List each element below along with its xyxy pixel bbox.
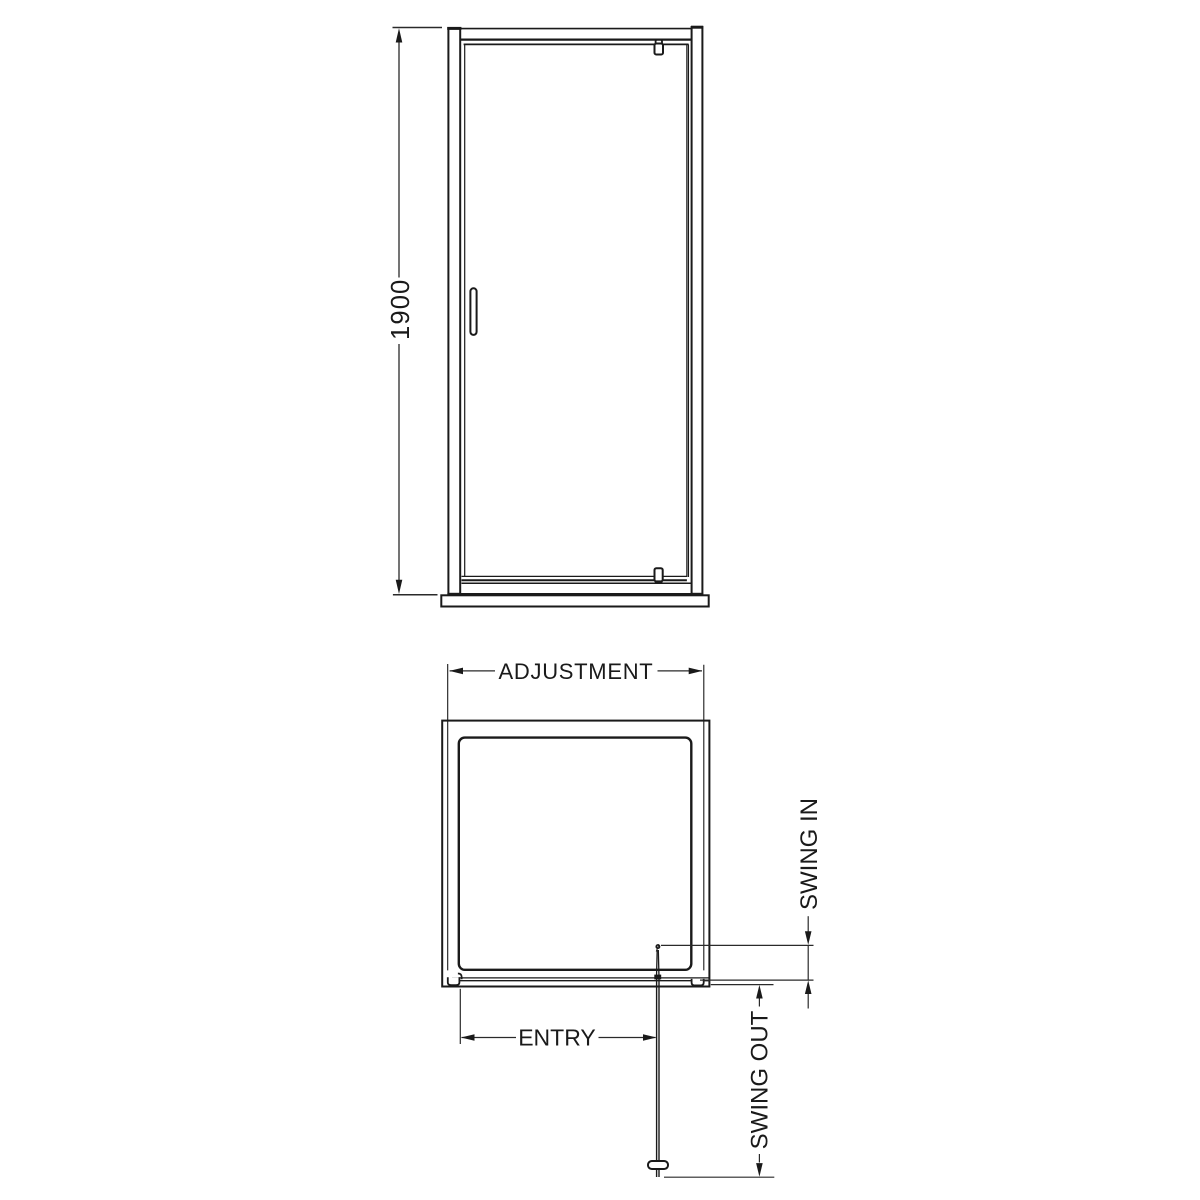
svg-text:SWING IN: SWING IN bbox=[796, 798, 823, 910]
svg-text:1900: 1900 bbox=[387, 279, 415, 340]
svg-text:ENTRY: ENTRY bbox=[518, 1024, 596, 1050]
svg-text:ADJUSTMENT: ADJUSTMENT bbox=[499, 659, 654, 684]
svg-text:SWING OUT: SWING OUT bbox=[746, 1010, 773, 1149]
